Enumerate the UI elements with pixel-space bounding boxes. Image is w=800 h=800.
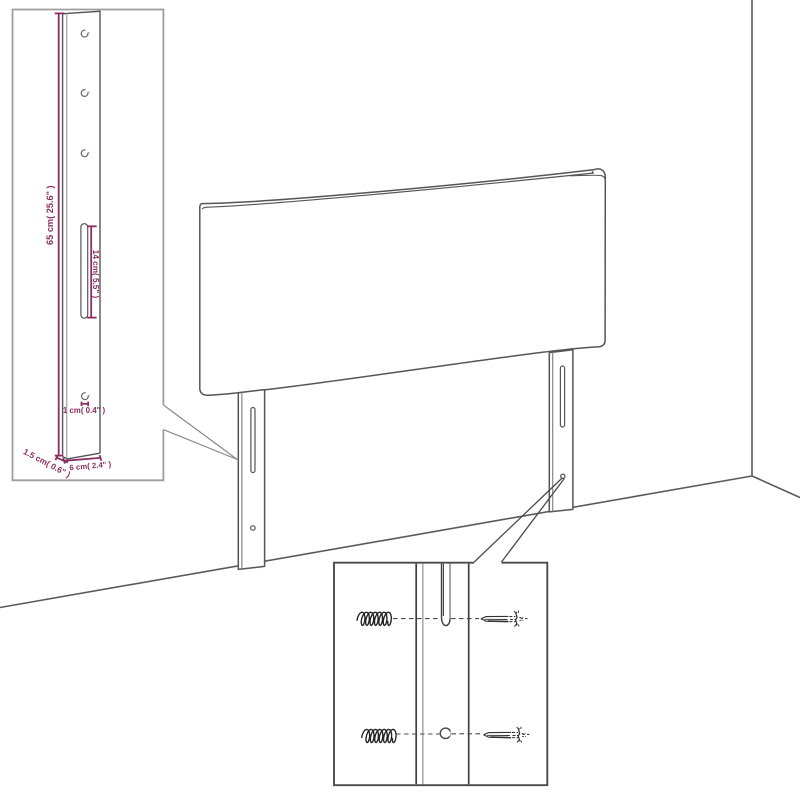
svg-text:14 cm( 5.5" ): 14 cm( 5.5" ) <box>91 250 100 299</box>
svg-text:65 cm( 25.6" ): 65 cm( 25.6" ) <box>45 185 55 245</box>
svg-text:1 cm( 0.4" ): 1 cm( 0.4" ) <box>63 406 106 415</box>
